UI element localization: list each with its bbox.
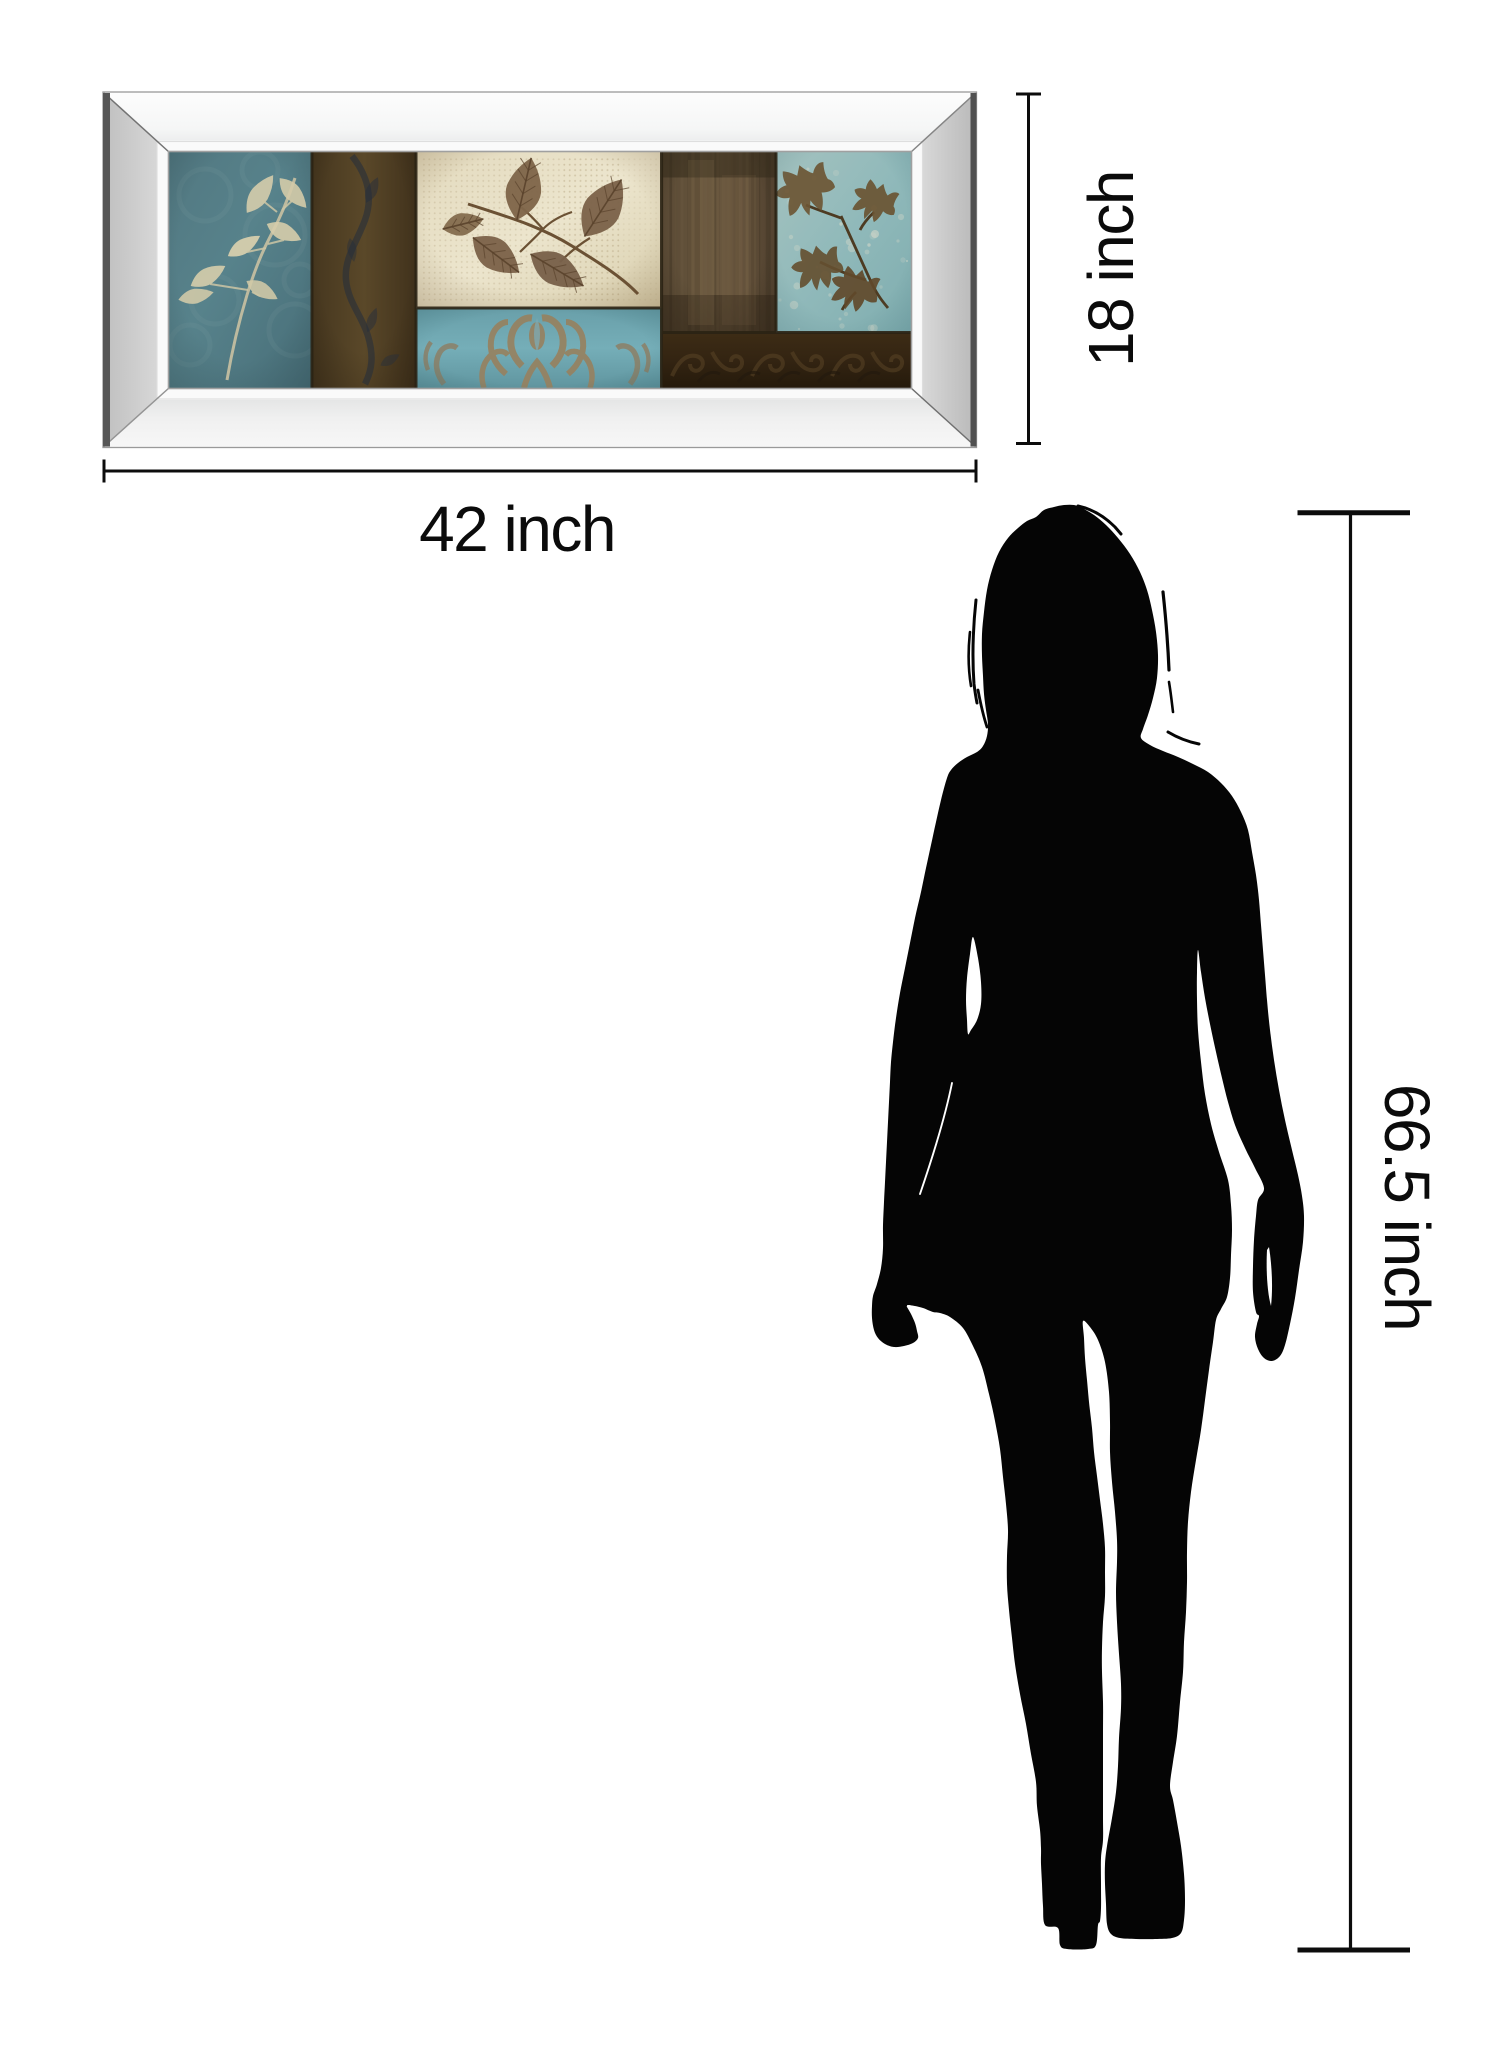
svg-text:66.5 inch: 66.5 inch bbox=[1371, 1084, 1443, 1330]
svg-text:18 inch: 18 inch bbox=[1075, 171, 1147, 367]
svg-text:42 inch: 42 inch bbox=[419, 493, 615, 565]
